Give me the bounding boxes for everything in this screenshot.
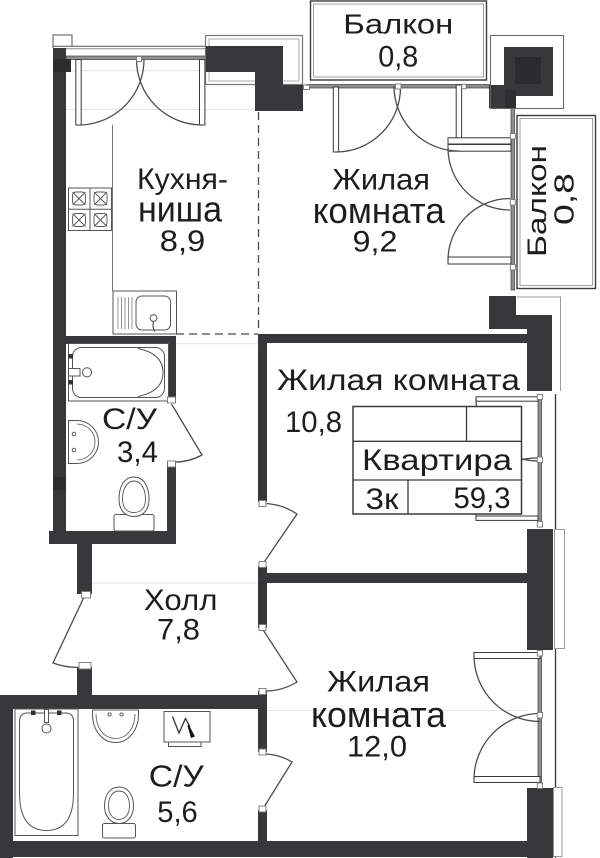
svg-text:С/У: С/У <box>102 403 158 436</box>
svg-text:комната: комната <box>311 694 447 735</box>
svg-text:10,8: 10,8 <box>285 406 342 439</box>
svg-text:ниша: ниша <box>138 189 223 230</box>
svg-text:3к: 3к <box>366 483 400 516</box>
svg-text:Балкон: Балкон <box>522 145 552 257</box>
svg-text:Холл: Холл <box>144 584 218 617</box>
svg-text:0,8: 0,8 <box>378 41 418 74</box>
svg-text:8,9: 8,9 <box>160 225 206 258</box>
svg-text:5,6: 5,6 <box>157 796 198 829</box>
svg-text:7,8: 7,8 <box>157 614 200 647</box>
svg-text:Квартира: Квартира <box>362 444 513 477</box>
svg-text:Балкон: Балкон <box>343 8 453 39</box>
svg-text:9,2: 9,2 <box>353 226 398 259</box>
svg-text:С/У: С/У <box>149 760 205 794</box>
svg-text:3,4: 3,4 <box>117 436 158 469</box>
svg-text:0,8: 0,8 <box>549 173 580 225</box>
svg-text:Жилая комната: Жилая комната <box>277 364 521 397</box>
svg-text:59,3: 59,3 <box>454 482 511 515</box>
svg-text:12,0: 12,0 <box>347 731 407 764</box>
